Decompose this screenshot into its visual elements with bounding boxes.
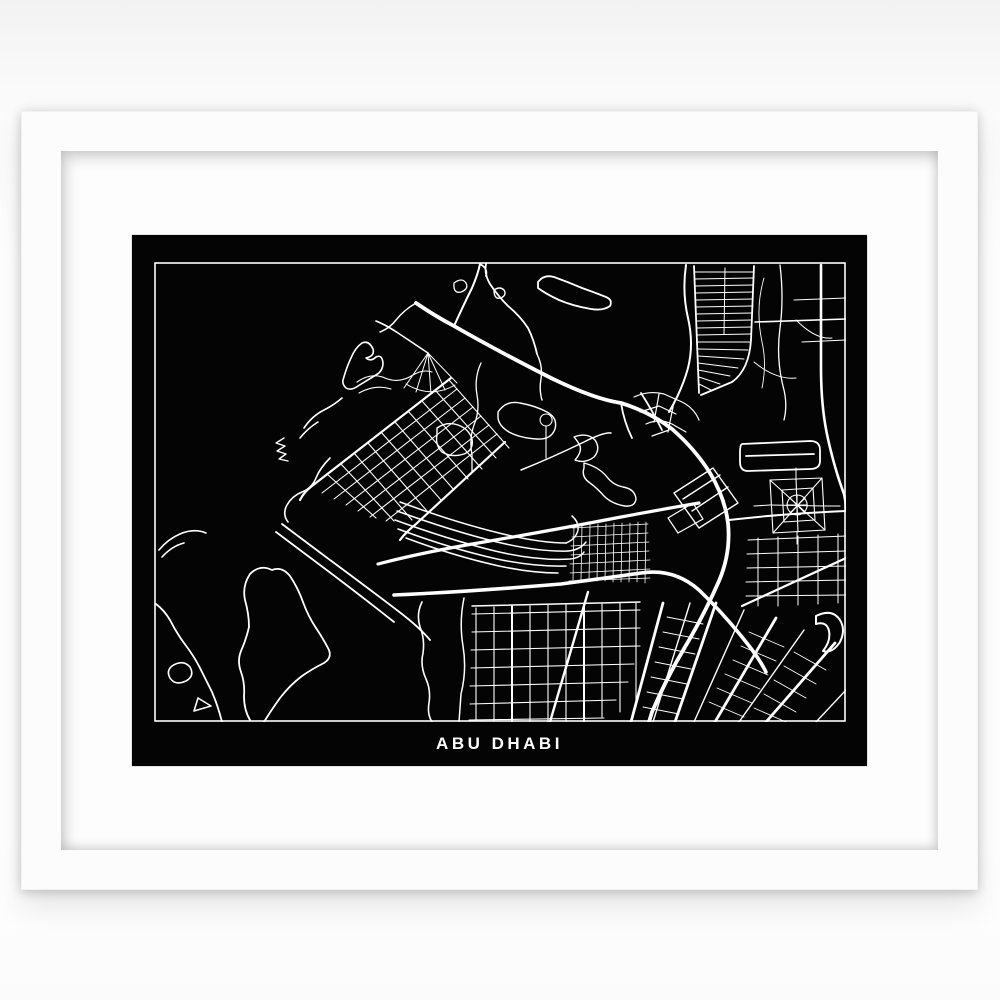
map-road (787, 495, 807, 515)
map-road (404, 353, 457, 394)
map-road (300, 398, 342, 438)
map-road (194, 698, 211, 711)
map-road (759, 278, 765, 388)
map-road (343, 342, 383, 389)
city-map-svg (154, 262, 846, 722)
map-road (779, 265, 786, 420)
map-road (740, 441, 820, 471)
map-road (724, 268, 725, 334)
map-road (418, 602, 432, 722)
frame-mat: ABU DHABI (61, 151, 938, 850)
map-road (159, 531, 206, 557)
map-road (357, 371, 432, 393)
map-road (380, 303, 416, 332)
map-road (276, 438, 288, 461)
map-road (755, 319, 846, 322)
product-photo: ABU DHABI (0, 0, 1000, 1000)
map-inner-border (155, 263, 845, 721)
map-road (459, 598, 465, 722)
map-road (472, 602, 640, 606)
picture-frame: ABU DHABI (21, 111, 978, 890)
map-road (454, 264, 480, 326)
map-road (454, 280, 467, 292)
map-road (378, 503, 699, 564)
map-road (156, 604, 222, 722)
map-road (669, 265, 691, 412)
map-area (154, 262, 846, 722)
map-road (400, 442, 505, 540)
map-road (276, 524, 430, 640)
map-road (574, 435, 598, 461)
map-road (480, 264, 537, 354)
map-road (239, 568, 330, 722)
map-road (621, 393, 662, 438)
map-road (821, 265, 846, 510)
map-road (754, 652, 826, 722)
map-road (437, 424, 473, 456)
city-title: ABU DHABI (132, 722, 867, 766)
map-road (538, 276, 611, 309)
map-road (537, 354, 542, 400)
map-road (631, 603, 835, 722)
map-road (583, 463, 636, 506)
map-road (634, 393, 699, 436)
map-road (327, 380, 509, 521)
map-road (168, 663, 191, 683)
map-road (729, 511, 846, 520)
map-poster: ABU DHABI (132, 235, 867, 766)
map-road (816, 613, 843, 652)
map-road (416, 303, 729, 722)
map-road (376, 321, 428, 353)
map-road (498, 402, 556, 439)
map-roads-group (156, 264, 846, 722)
